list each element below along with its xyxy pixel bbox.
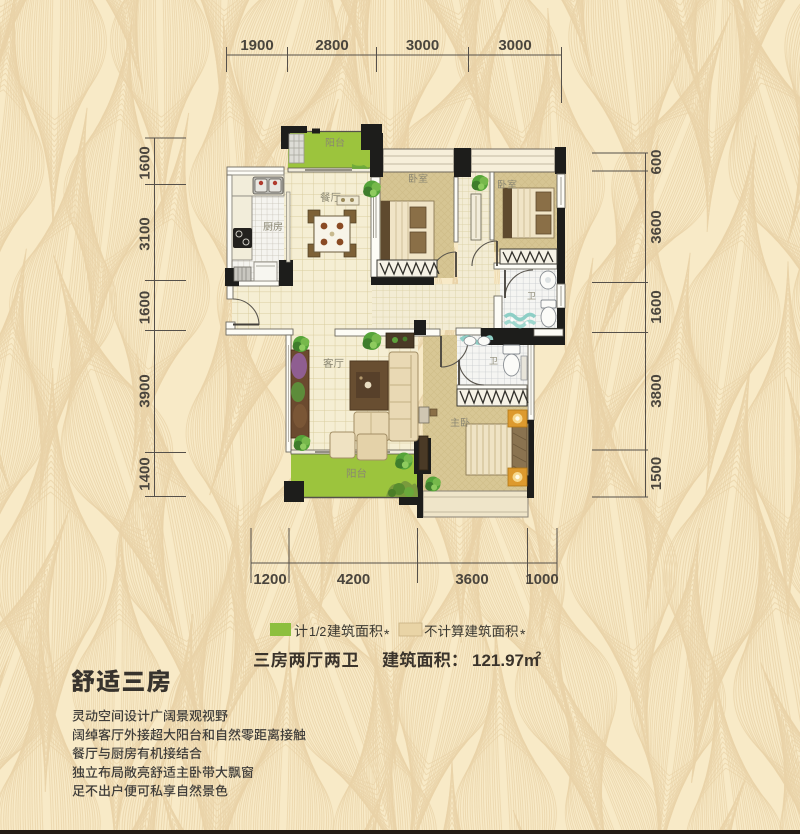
svg-text:1600: 1600 xyxy=(137,146,154,179)
svg-text:1200: 1200 xyxy=(253,571,286,588)
svg-text:1900: 1900 xyxy=(240,37,273,54)
svg-text:4200: 4200 xyxy=(337,571,370,588)
svg-text:1500: 1500 xyxy=(648,457,665,490)
svg-text:1600: 1600 xyxy=(648,290,665,323)
svg-text:1400: 1400 xyxy=(137,457,154,490)
svg-text:3000: 3000 xyxy=(406,37,439,54)
svg-text:3100: 3100 xyxy=(137,217,154,250)
svg-text:3600: 3600 xyxy=(648,210,665,243)
svg-text:2: 2 xyxy=(536,650,542,662)
svg-text:3800: 3800 xyxy=(648,374,665,407)
svg-text:121.97m: 121.97m xyxy=(472,651,539,670)
svg-text:3600: 3600 xyxy=(455,571,488,588)
svg-text:2800: 2800 xyxy=(315,37,348,54)
svg-text:*: * xyxy=(384,626,390,642)
svg-text:*: * xyxy=(520,626,526,642)
svg-text:1600: 1600 xyxy=(137,291,154,324)
svg-text:1000: 1000 xyxy=(525,571,558,588)
svg-text:600: 600 xyxy=(648,149,665,174)
svg-text:3000: 3000 xyxy=(498,37,531,54)
svg-text:1/2: 1/2 xyxy=(309,625,326,639)
svg-text:3900: 3900 xyxy=(137,374,154,407)
